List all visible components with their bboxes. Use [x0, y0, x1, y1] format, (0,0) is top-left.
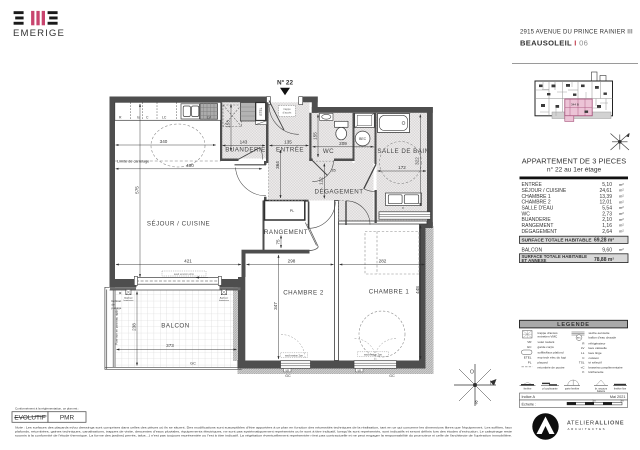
svg-text:seuil environ 2cm: seuil environ 2cm [174, 272, 194, 276]
svg-text:BALCON: BALCON [522, 247, 543, 253]
svg-text:n° 22 au 1er étage: n° 22 au 1er étage [547, 166, 602, 174]
svg-text:78,88 m²: 78,88 m² [594, 257, 614, 263]
svg-text:BEC: BEC [359, 137, 367, 141]
svg-text:lave vaisselle: lave vaisselle [589, 346, 608, 350]
svg-text:BEC: BEC [577, 338, 582, 340]
svg-text:ETEL: ETEL [259, 107, 263, 115]
svg-text:m²: m² [619, 247, 624, 252]
svg-text:m²: m² [619, 182, 624, 187]
svg-text:APPARTEMENT DE 3 PIECES: APPARTEMENT DE 3 PIECES [522, 157, 627, 166]
svg-text:fenêtre: fenêtre [524, 387, 532, 390]
svg-text:EMERIGE: EMERIGE [13, 28, 65, 39]
svg-text:347: 347 [273, 302, 278, 310]
svg-text:sèche-serviette: sèche-serviette [589, 331, 610, 335]
svg-text:ballon d'eau chaude: ballon d'eau chaude [589, 335, 617, 339]
svg-text:GC: GC [285, 374, 291, 378]
svg-text:GC: GC [190, 361, 196, 365]
svg-text:TSL: TSL [579, 361, 585, 365]
svg-text:155: 155 [312, 132, 317, 140]
svg-text:35: 35 [331, 168, 336, 173]
svg-text:448: 448 [415, 286, 420, 294]
svg-text:volet roulant: volet roulant [538, 340, 555, 344]
svg-text:RANGEMENT: RANGEMENT [264, 229, 308, 236]
svg-text:m²: m² [619, 229, 624, 234]
svg-text:373: 373 [166, 343, 174, 348]
svg-text:VR: VR [527, 340, 532, 344]
svg-text:153: 153 [225, 120, 230, 128]
svg-text:entretien VMC: entretien VMC [538, 335, 559, 339]
svg-text:340: 340 [160, 139, 168, 144]
svg-text:Conformément à la réglementati: Conformément à la réglementation, ce pla… [15, 406, 79, 410]
svg-text:retombée de poutre: retombée de poutre [538, 365, 565, 369]
svg-text:322: 322 [415, 157, 420, 165]
svg-text:ETEL: ETEL [524, 355, 532, 359]
svg-text:298: 298 [288, 259, 296, 264]
svg-text:m²: m² [619, 194, 624, 199]
svg-text:490: 490 [186, 163, 194, 168]
svg-text:m²: m² [619, 217, 624, 222]
svg-text:WC: WC [323, 148, 334, 155]
svg-text:209: 209 [339, 141, 347, 146]
svg-text:Pare-vue en panneau rigide: Pare-vue en panneau rigide [115, 309, 119, 345]
svg-text:LC: LC [162, 116, 167, 120]
svg-text:O: O [470, 370, 474, 376]
svg-text:GC: GC [389, 374, 395, 378]
svg-text:122: 122 [319, 177, 324, 185]
svg-text:ARCHITECTES: ARCHITECTES [568, 427, 607, 431]
svg-text:✕: ✕ [119, 291, 122, 296]
svg-text:PMR: PMR [60, 415, 75, 422]
svg-text:575: 575 [134, 186, 139, 194]
svg-text:batterie: batterie [597, 390, 606, 393]
svg-text:PL: PL [290, 209, 294, 213]
svg-text:N: N [490, 381, 494, 387]
svg-text:garde corps: garde corps [538, 345, 555, 349]
svg-text:lave linge: lave linge [589, 351, 602, 355]
svg-text:LEGENDE: LEGENDE [557, 322, 590, 328]
svg-text:m²: m² [619, 199, 624, 204]
svg-text:m²: m² [619, 223, 624, 228]
svg-text:LL: LL [581, 351, 585, 355]
svg-text:Limite de carrelage: Limite de carrelage [117, 160, 149, 164]
svg-text:tri sélectif: tri sélectif [589, 361, 602, 365]
svg-text:143: 143 [240, 140, 248, 145]
svg-text:75: 75 [275, 239, 280, 245]
svg-text:238: 238 [131, 323, 136, 331]
svg-text:pf coulissante: pf coulissante [542, 387, 558, 390]
svg-text:Mai 2021: Mai 2021 [610, 395, 626, 399]
svg-text:SÉJOUR / CUISINE: SÉJOUR / CUISINE [147, 221, 210, 228]
svg-text:seuil environ 2cm: seuil environ 2cm [364, 353, 382, 356]
svg-text:soffite/faux plafond: soffite/faux plafond [538, 350, 564, 354]
svg-text:DÉGAGEMENT: DÉGAGEMENT [314, 189, 363, 196]
svg-text:lumineuse: lumineuse [219, 300, 230, 302]
svg-text:porte fenêtre: porte fenêtre [565, 387, 580, 390]
svg-text:m²: m² [619, 205, 624, 210]
svg-text:172: 172 [398, 165, 406, 170]
svg-text:ET ANNEXE: ET ANNEXE [522, 258, 547, 263]
svg-text:placard: placard [538, 360, 548, 364]
svg-text:421: 421 [184, 259, 192, 264]
svg-text:BUANDERIE: BUANDERIE [225, 147, 266, 154]
svg-text:SURFACE TOTALE HABITABLE: SURFACE TOTALE HABITABLE [522, 237, 592, 242]
svg-text:VR: VR [357, 368, 361, 372]
svg-text:braseira complémentaire: braseira complémentaire [589, 365, 623, 369]
svg-text:kitchenette: kitchenette [589, 370, 604, 374]
svg-text:2915 AVENUE DU PRINCE RAINIER: 2915 AVENUE DU PRINCE RAINIER III [520, 30, 633, 36]
svg-text:ENTRÉE: ENTRÉE [276, 147, 304, 154]
svg-text:Io: Io [137, 116, 140, 120]
svg-text:Indice A: Indice A [522, 395, 536, 399]
svg-text:soumis à la conformité de l'ét: soumis à la conformité de l'étude thermi… [15, 434, 512, 438]
svg-text:ATELIERALLIONE: ATELIERALLIONE [567, 421, 624, 427]
svg-text:Applique: Applique [124, 296, 133, 299]
svg-text:282: 282 [379, 259, 387, 264]
svg-text:Échelle :: Échelle : [522, 401, 537, 406]
svg-text:lumineuse: lumineuse [124, 300, 135, 302]
svg-text:DÉGAGEMENT: DÉGAGEMENT [522, 228, 558, 235]
svg-text:VR: VR [285, 368, 289, 372]
svg-text:344 B: 344 B [571, 103, 579, 107]
svg-text:EVOLUTIF: EVOLUTIF [14, 415, 45, 422]
svg-text:1m: 1m [592, 398, 596, 402]
svg-text:364: 364 [275, 161, 280, 169]
svg-text:cuisson: cuisson [589, 356, 600, 360]
svg-text:d'accès: d'accès [283, 111, 292, 115]
svg-text:esp tech elec du logt: esp tech elec du logt [538, 355, 567, 359]
svg-text:GC: GC [527, 345, 532, 349]
svg-text:trappe: trappe [283, 107, 291, 111]
svg-text:2,64: 2,64 [602, 229, 612, 235]
svg-text:Applique: Applique [220, 296, 229, 299]
svg-text:CHAMBRE 1: CHAMBRE 1 [369, 289, 410, 296]
svg-text:BEAUSOLEIL I 06: BEAUSOLEIL I 06 [520, 39, 588, 48]
svg-text:m²: m² [619, 188, 624, 193]
svg-text:m²: m² [619, 211, 624, 216]
svg-text:fenêtre fixe: fenêtre fixe [614, 387, 627, 390]
svg-text:PL: PL [528, 360, 532, 364]
svg-text:135: 135 [284, 140, 292, 145]
svg-text:seuil environ 2cm: seuil environ 2cm [285, 354, 303, 357]
svg-text:réfrigérateur: réfrigérateur [589, 341, 606, 345]
svg-text:5m: 5m [620, 398, 624, 402]
svg-text:69,28 m²: 69,28 m² [594, 237, 614, 243]
svg-text:CHAMBRE 2: CHAMBRE 2 [283, 290, 324, 297]
svg-text:BALCON: BALCON [161, 323, 189, 330]
svg-text:N° 22: N° 22 [277, 79, 294, 87]
svg-text:SALLE DE BAIN: SALLE DE BAIN [377, 148, 429, 155]
svg-text:9,60: 9,60 [602, 247, 612, 253]
